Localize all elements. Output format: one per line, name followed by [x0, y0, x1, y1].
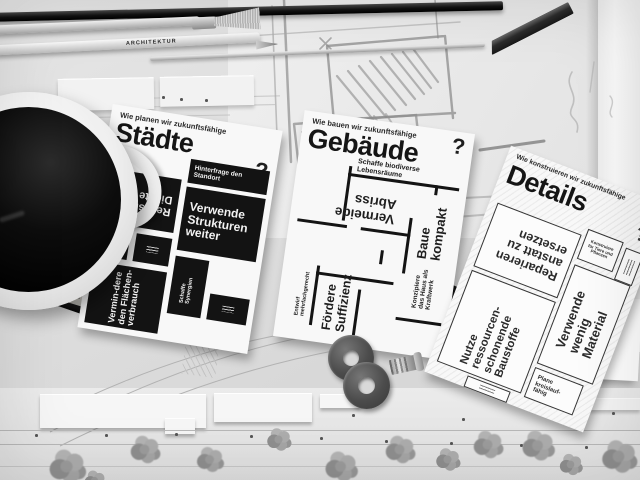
- model-dot: [205, 99, 208, 102]
- model-dot: [180, 98, 183, 101]
- model-tree: [567, 461, 575, 469]
- coffee-gleam: [0, 210, 25, 223]
- model-dot: [320, 437, 323, 440]
- road-line: [0, 444, 640, 445]
- road-line: [0, 466, 640, 467]
- model-tree: [395, 445, 405, 455]
- card-item: [132, 233, 172, 266]
- model-tree: [613, 451, 625, 463]
- model-dot: [450, 442, 453, 445]
- model-tree: [483, 440, 493, 450]
- pencil-label: ARCHITEKTUR: [126, 38, 177, 46]
- card-item: Konstruiere für Tiere und Pflanzen: [577, 229, 624, 272]
- model-dot: [385, 440, 388, 443]
- model-tree: [205, 455, 214, 464]
- metal-pin: [389, 354, 421, 375]
- card-item: Schaffe Synergien: [167, 256, 210, 319]
- cup-body: [0, 92, 138, 310]
- model-dot: [612, 412, 615, 415]
- model-dot: [35, 434, 38, 437]
- model-tree: [532, 440, 543, 451]
- desk-photo: ARCHITEKTUR: [0, 0, 640, 480]
- card-item: Konzipiere das Haus als Kraftwerk: [399, 254, 449, 323]
- card-item: [206, 294, 250, 326]
- road-line: [0, 430, 640, 431]
- model-building: [165, 418, 195, 434]
- model-tree: [443, 455, 451, 463]
- coffee: [0, 107, 121, 292]
- brush-ferrule: [192, 16, 217, 29]
- model-tree: [140, 445, 150, 455]
- architektur-pencil: ARCHITEKTUR: [0, 32, 260, 55]
- model-dot: [520, 444, 523, 447]
- foam-block: [160, 75, 255, 107]
- model-dot: [462, 418, 465, 421]
- question-mark-icon: ?: [631, 223, 640, 249]
- model-building: [214, 393, 312, 422]
- model-dot: [585, 446, 588, 449]
- model-tree: [274, 435, 282, 443]
- question-mark-icon: ?: [450, 133, 467, 161]
- model-tree: [60, 460, 72, 472]
- model-dot: [162, 96, 165, 99]
- coffee-cup: [0, 92, 138, 310]
- model-dot: [352, 414, 355, 417]
- model-tree: [335, 461, 346, 472]
- model-dot: [105, 434, 108, 437]
- model-dot: [175, 433, 178, 436]
- card-item: Verwende Strukturen weiter: [177, 187, 266, 263]
- washer: [343, 362, 390, 409]
- model-dot: [250, 435, 253, 438]
